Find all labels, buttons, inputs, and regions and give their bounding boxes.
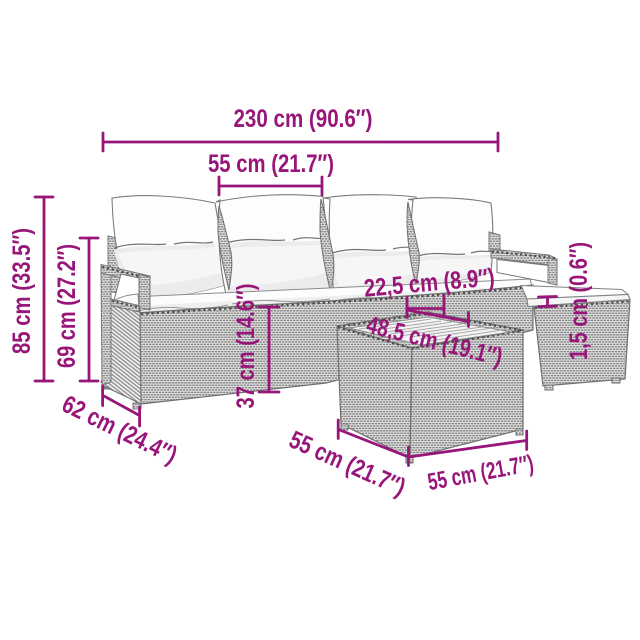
svg-text:230 cm (90.6″): 230 cm (90.6″) bbox=[234, 105, 373, 133]
svg-text:55 cm (21.7″): 55 cm (21.7″) bbox=[208, 150, 334, 178]
svg-text:69 cm (27.2″): 69 cm (27.2″) bbox=[53, 244, 81, 368]
svg-text:1,5 cm (0.6″): 1,5 cm (0.6″) bbox=[565, 242, 593, 360]
svg-text:85 cm (33.5″): 85 cm (33.5″) bbox=[8, 228, 36, 354]
svg-text:37 cm (14.6″): 37 cm (14.6″) bbox=[232, 284, 260, 409]
